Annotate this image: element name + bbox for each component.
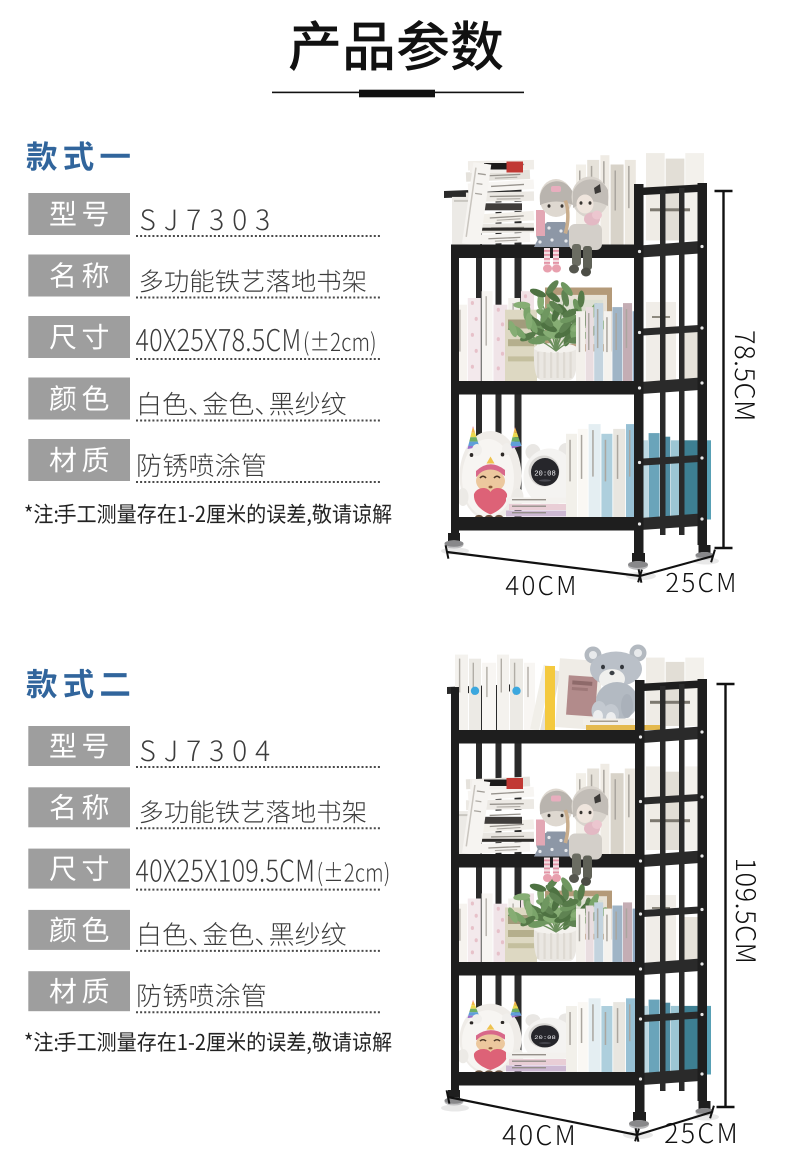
svg-text:20:08: 20:08 (534, 471, 556, 479)
svg-text:20:08: 20:08 (534, 1035, 556, 1041)
